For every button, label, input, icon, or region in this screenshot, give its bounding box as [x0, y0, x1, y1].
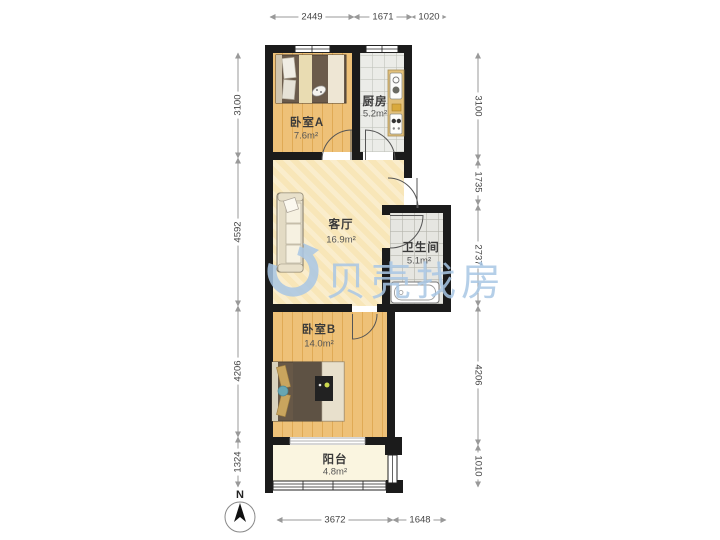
- dim-top-1: 2449: [298, 11, 325, 22]
- bedroom-b-label: 卧室B: [302, 321, 336, 337]
- floor-plan-drawing: [0, 0, 720, 540]
- floor-plan: 卧室A 7.6m² 厨房 5.2m² 客厅 16.9m² 卫生间 5.1m² 卧…: [0, 0, 720, 540]
- dim-bottom-2: 1648: [406, 514, 433, 525]
- bathroom-area: 5.1m²: [407, 256, 431, 267]
- kitchen-area: 5.2m²: [363, 109, 387, 120]
- dim-top-3: 1020: [415, 11, 442, 22]
- bedroom-a-label: 卧室A: [290, 114, 324, 130]
- sofa: [277, 193, 303, 272]
- dim-left-3: 4206: [232, 357, 243, 384]
- dim-right-1: 3100: [472, 92, 483, 119]
- dim-left-4: 1324: [232, 448, 243, 475]
- door-bedroom-b: [352, 314, 377, 339]
- balcony-area: 4.8m²: [323, 467, 347, 478]
- kitchen-counter: [388, 70, 404, 136]
- bed-bedroom-b: [272, 362, 344, 421]
- balcony-threshold: [290, 438, 365, 444]
- compass: [225, 502, 255, 532]
- bedroom-a-area: 7.6m²: [294, 131, 318, 142]
- bedroom-b-area: 14.0m²: [304, 339, 334, 350]
- dim-left-2: 4592: [232, 218, 243, 245]
- dim-right-3: 2737: [472, 241, 483, 268]
- bathtub: [391, 282, 439, 303]
- window-bedroom-a: [295, 46, 330, 53]
- living-room-area: 16.9m²: [326, 235, 356, 246]
- window-balcony-front: [273, 481, 386, 490]
- compass-north-label: N: [236, 489, 244, 501]
- door-entry: [388, 178, 418, 208]
- dim-top-2: 1671: [369, 11, 396, 22]
- bed-bedroom-a: [276, 55, 346, 103]
- dim-right-5: 1010: [472, 452, 483, 479]
- living-room-label: 客厅: [329, 216, 354, 232]
- door-bedroom-a: [322, 130, 352, 160]
- dim-left-1: 3100: [232, 91, 243, 118]
- balcony-label: 阳台: [323, 451, 348, 467]
- kitchen-label: 厨房: [363, 93, 388, 109]
- dim-right-2: 1735: [472, 168, 483, 195]
- window-kitchen: [366, 46, 398, 53]
- dim-bottom-1: 3672: [321, 514, 348, 525]
- dim-right-4: 4206: [472, 361, 483, 388]
- window-balcony-side: [388, 455, 397, 483]
- bathroom-label: 卫生间: [402, 239, 440, 255]
